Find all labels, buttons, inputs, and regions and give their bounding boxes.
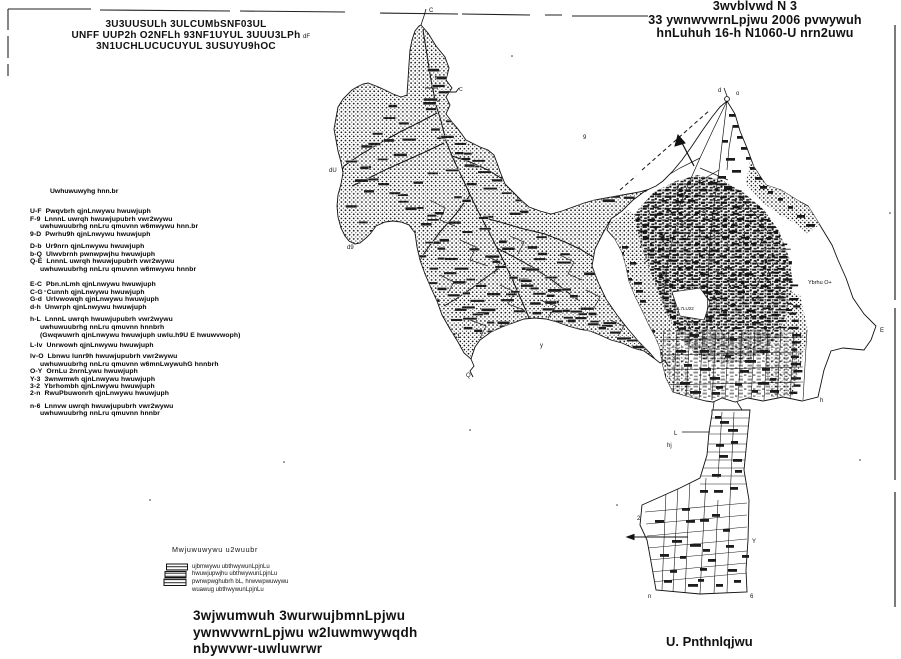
svg-text:9: 9 <box>583 135 587 141</box>
svg-text:d9: d9 <box>347 245 354 251</box>
svg-text:Q: Q <box>466 373 471 379</box>
svg-text:h: h <box>820 398 823 404</box>
svg-text:y: y <box>540 343 543 349</box>
svg-text:n: n <box>648 594 651 600</box>
svg-text:dU: dU <box>329 168 337 174</box>
svg-text:dF: dF <box>303 34 310 40</box>
svg-text:hj: hj <box>667 443 672 449</box>
svg-text:C: C <box>459 87 463 93</box>
svg-text:L: L <box>674 431 678 437</box>
svg-text:6: 6 <box>750 594 754 600</box>
svg-text:Ybrhu O+: Ybrhu O+ <box>808 280 832 286</box>
svg-text:o: o <box>736 91 740 97</box>
svg-text:C: C <box>429 8 434 14</box>
svg-text:Y: Y <box>752 539 756 545</box>
svg-text:L7LU22: L7LU22 <box>678 306 694 311</box>
svg-text:E: E <box>880 328 884 334</box>
svg-text:d: d <box>718 88 721 94</box>
